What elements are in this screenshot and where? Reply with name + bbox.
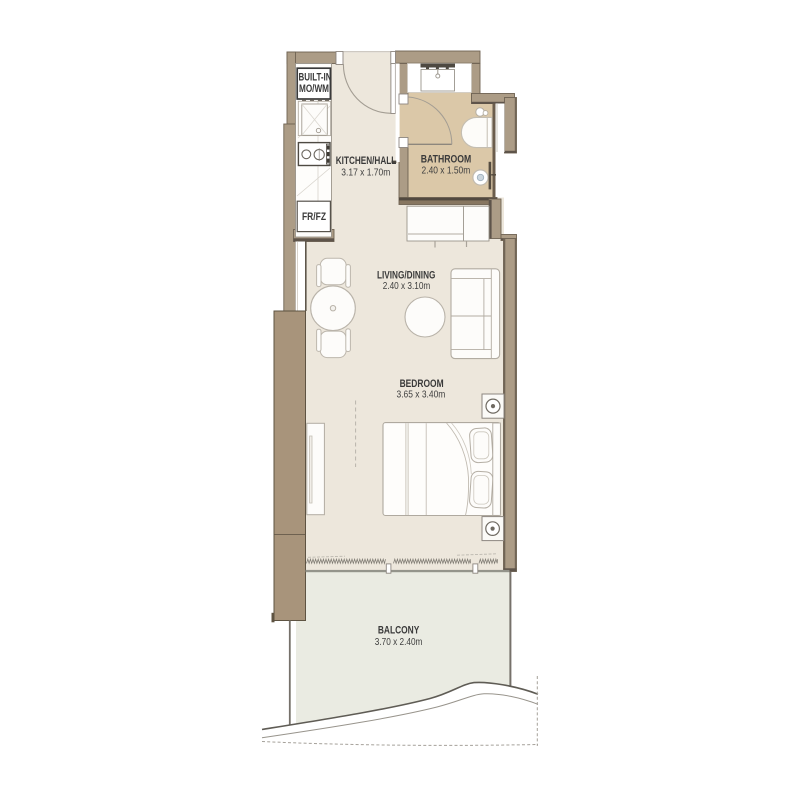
svg-text:LIVING/DINING: LIVING/DINING: [377, 270, 436, 282]
svg-text:3.65 x 3.40m: 3.65 x 3.40m: [397, 390, 446, 401]
svg-text:2.40 x 1.50m: 2.40 x 1.50m: [422, 166, 471, 177]
svg-text:3.70 x 2.40m: 3.70 x 2.40m: [375, 637, 423, 648]
svg-text:BUILT-IN: BUILT-IN: [299, 71, 332, 83]
svg-text:BATHROOM: BATHROOM: [421, 153, 472, 165]
svg-text:FR/FZ: FR/FZ: [302, 211, 326, 223]
svg-text:2.40 x 3.10m: 2.40 x 3.10m: [383, 281, 431, 292]
svg-text:KITCHEN/HALL: KITCHEN/HALL: [336, 155, 397, 167]
svg-text:BALCONY: BALCONY: [378, 624, 420, 636]
svg-text:MO/WM: MO/WM: [299, 83, 329, 95]
svg-text:BEDROOM: BEDROOM: [400, 378, 444, 390]
svg-text:3.17 x 1.70m: 3.17 x 1.70m: [341, 168, 390, 179]
